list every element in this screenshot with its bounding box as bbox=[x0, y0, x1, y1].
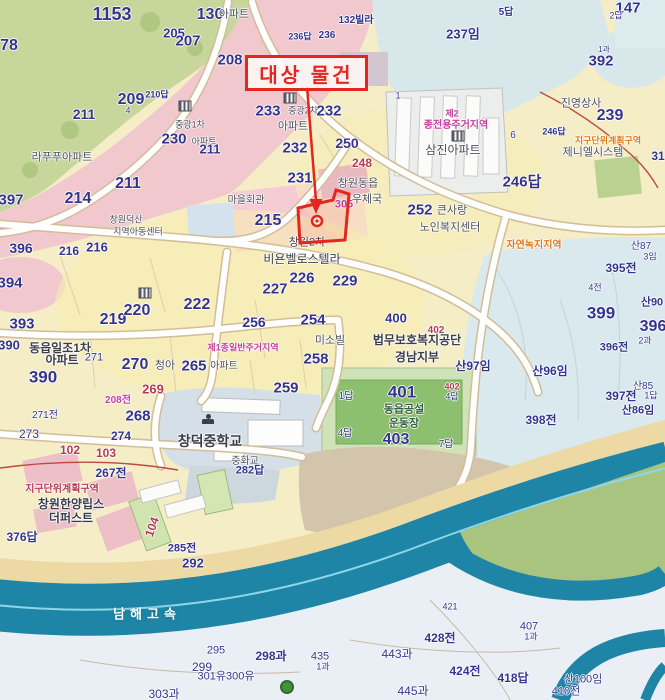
map-base-art bbox=[0, 0, 665, 700]
apartment-slab bbox=[483, 118, 499, 174]
apartment-slab bbox=[441, 96, 458, 178]
forest-texture bbox=[140, 12, 160, 32]
school-building bbox=[248, 420, 303, 446]
forest-texture bbox=[187, 40, 203, 56]
block-patch bbox=[340, 52, 388, 86]
school-building bbox=[202, 398, 280, 415]
farm-patch bbox=[594, 156, 642, 198]
stadium-field bbox=[336, 380, 462, 444]
greenbelt-zone bbox=[615, 0, 665, 48]
apartment-slab bbox=[464, 96, 481, 176]
map-viewport: 115378130아파트236답236132빌라205207208209210답… bbox=[0, 0, 665, 700]
forest-texture bbox=[22, 162, 38, 178]
forest-texture bbox=[61, 121, 79, 139]
apartment-slab bbox=[418, 97, 435, 177]
